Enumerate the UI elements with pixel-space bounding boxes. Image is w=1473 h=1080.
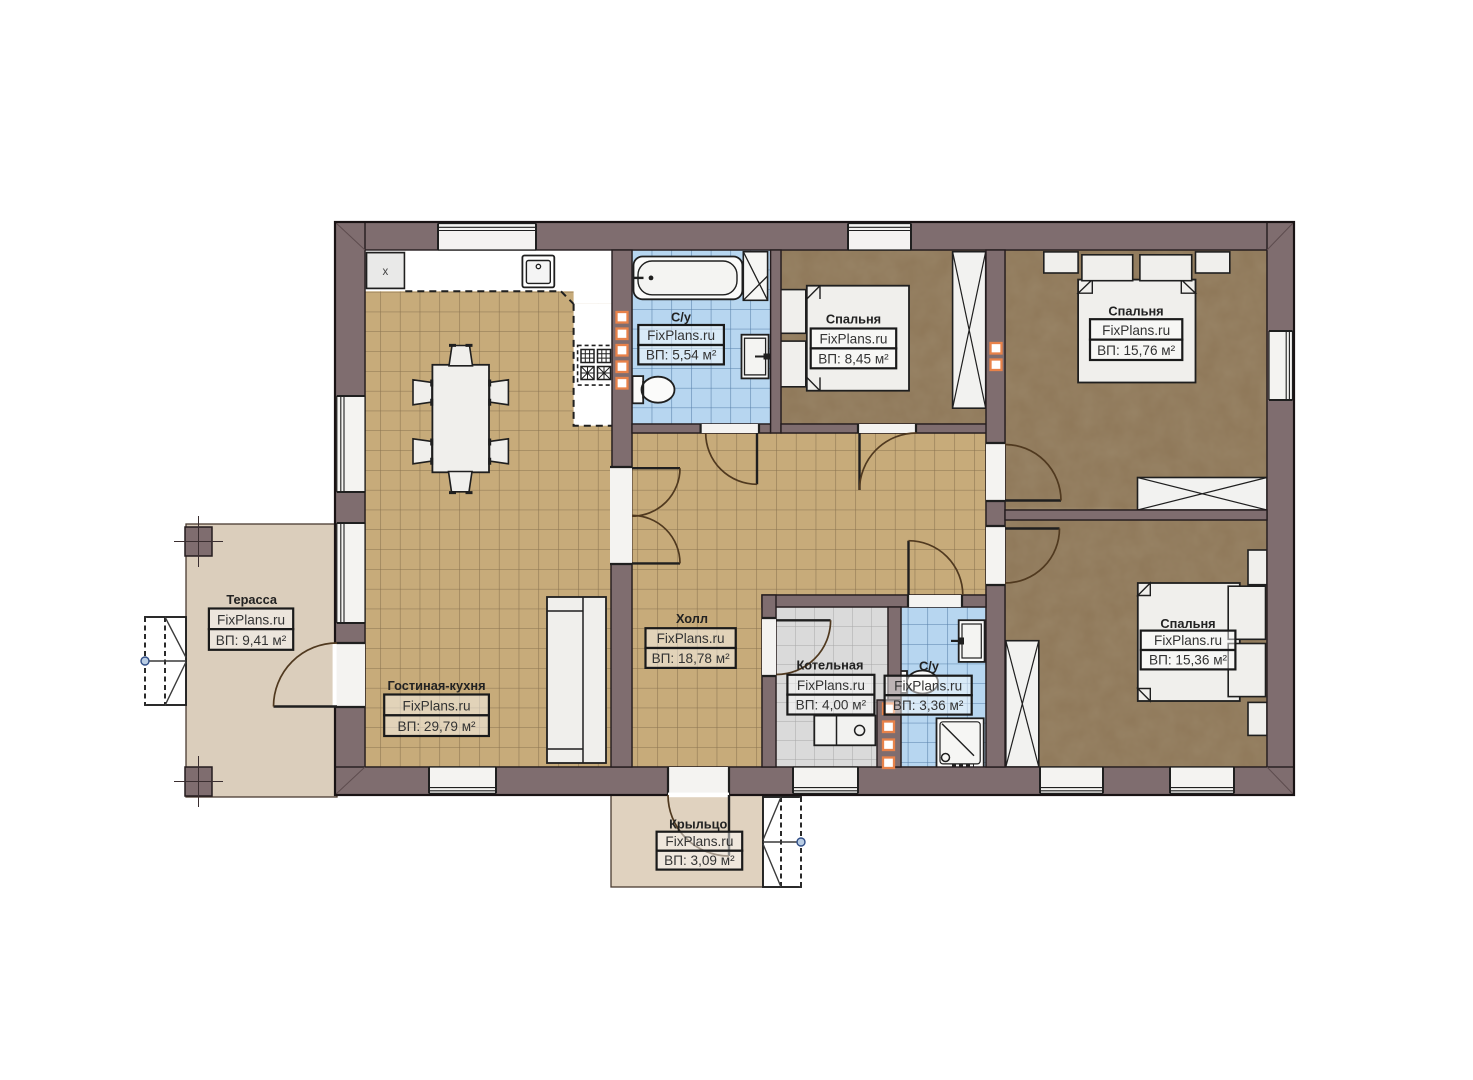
svg-text:Терасса: Терасса [226,592,278,607]
svg-text:FixPlans.ru: FixPlans.ru [217,612,285,627]
svg-text:Крыльцо: Крыльцо [669,817,727,832]
svg-text:FixPlans.ru: FixPlans.ru [403,699,471,714]
svg-text:FixPlans.ru: FixPlans.ru [1102,323,1170,338]
svg-text:FixPlans.ru: FixPlans.ru [819,332,887,347]
svg-text:Гостиная-кухня: Гостиная-кухня [387,678,485,693]
svg-text:ВП: 3,09 м²: ВП: 3,09 м² [664,853,735,868]
svg-text:x: x [383,266,389,278]
svg-text:С/у: С/у [671,310,692,325]
svg-text:ВП: 8,45 м²: ВП: 8,45 м² [818,352,889,367]
svg-text:С/у: С/у [919,659,940,674]
svg-text:FixPlans.ru: FixPlans.ru [1154,633,1222,648]
svg-text:ВП: 29,79 м²: ВП: 29,79 м² [398,719,477,734]
svg-text:ВП: 5,54 м²: ВП: 5,54 м² [646,348,717,363]
svg-text:ВП: 9,41 м²: ВП: 9,41 м² [216,633,287,648]
svg-text:Холл: Холл [676,611,708,626]
svg-text:FixPlans.ru: FixPlans.ru [647,328,715,343]
svg-text:Котельная: Котельная [796,658,863,673]
svg-text:FixPlans.ru: FixPlans.ru [657,631,725,646]
svg-text:FixPlans.ru: FixPlans.ru [894,678,962,693]
svg-text:ВП: 3,36 м²: ВП: 3,36 м² [893,698,964,713]
svg-text:FixPlans.ru: FixPlans.ru [797,678,865,693]
svg-text:FixPlans.ru: FixPlans.ru [665,834,733,849]
svg-text:Спальня: Спальня [826,312,881,327]
svg-text:ВП: 15,76 м²: ВП: 15,76 м² [1097,343,1176,358]
svg-text:ВП: 4,00 м²: ВП: 4,00 м² [796,698,867,713]
svg-text:Спальня: Спальня [1160,616,1215,631]
svg-text:ВП: 18,78 м²: ВП: 18,78 м² [652,651,731,666]
svg-text:Спальня: Спальня [1108,304,1163,319]
svg-text:ВП: 15,36 м²: ВП: 15,36 м² [1149,653,1228,668]
